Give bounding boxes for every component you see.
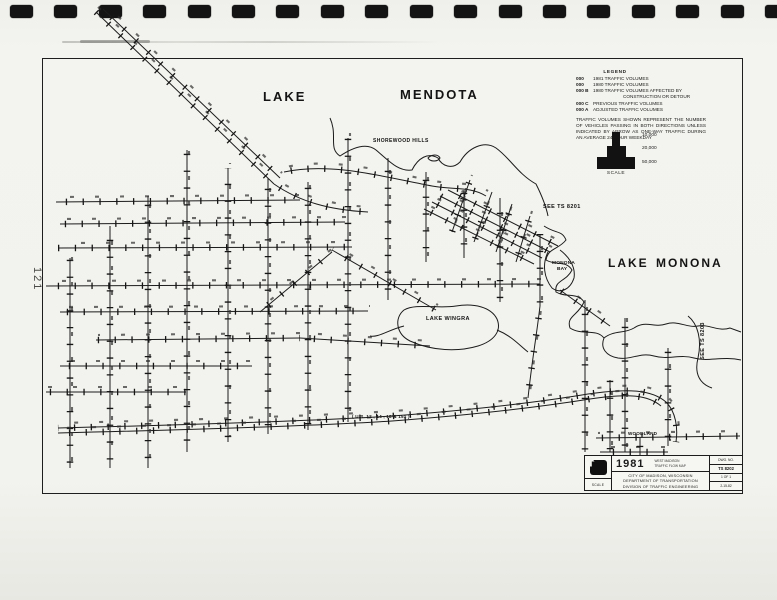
scale-value-label: 10,000 bbox=[642, 133, 657, 138]
scale-value-label: 50,000 bbox=[642, 160, 657, 165]
binder-hole bbox=[54, 5, 77, 18]
map-year: 1981 bbox=[612, 458, 648, 470]
lake-monona-label-word1: LAKE bbox=[608, 256, 649, 270]
scanned-page: { "page": { "number": "121" }, "binder":… bbox=[0, 0, 777, 600]
title-block-year-row: 1981 WEST MADISON TRAFFIC FLOW MAP bbox=[612, 456, 709, 472]
binder-hole bbox=[321, 5, 344, 18]
monona-bay-label-line2: BAY bbox=[557, 267, 567, 272]
binder-hole bbox=[365, 5, 388, 18]
binder-hole-strip bbox=[0, 0, 777, 26]
binder-hole bbox=[232, 5, 255, 18]
binder-hole bbox=[676, 5, 699, 18]
title-block-logo-column: SCALE bbox=[585, 456, 612, 490]
agency-line3: DIVISION OF TRAFFIC ENGINEERING bbox=[612, 484, 709, 489]
legend-title: LEGEND bbox=[576, 69, 654, 75]
north-arrow-cell bbox=[585, 456, 611, 479]
binder-hole bbox=[587, 5, 610, 18]
beltline-route-label: ( U.S. 12 , 14 , 18 & 151 ) bbox=[352, 414, 410, 419]
scan-smudge bbox=[80, 40, 150, 43]
scale-step-10000 bbox=[612, 132, 620, 146]
scale-step-50000 bbox=[597, 157, 635, 169]
binder-hole bbox=[454, 5, 477, 18]
lake-wingra-label: LAKE WINGRA bbox=[426, 316, 470, 322]
binder-hole bbox=[143, 5, 166, 18]
binder-hole bbox=[188, 5, 211, 18]
see-ts-8203-label: SEE TS 8203 bbox=[700, 322, 706, 360]
map-subtitle-line1: WEST MADISON bbox=[654, 459, 679, 463]
binder-hole bbox=[632, 5, 655, 18]
binder-hole bbox=[499, 5, 522, 18]
scale-caption: SCALE bbox=[596, 171, 636, 176]
scale-step-20000 bbox=[607, 146, 626, 157]
north-arrow-icon bbox=[590, 460, 607, 475]
lake-monona-label-word2: MONONA bbox=[656, 256, 723, 270]
dwg-no-label: DWG. NO. bbox=[710, 456, 742, 465]
woodland-road-label: WOODLAND bbox=[628, 431, 657, 436]
map-subtitle-line2: TRAFFIC FLOW MAP bbox=[654, 464, 685, 468]
scale-steps: 10,000 20,000 50,000 bbox=[596, 131, 636, 169]
binder-hole bbox=[10, 5, 33, 18]
page-number: 121 bbox=[3, 267, 43, 297]
binder-hole bbox=[276, 5, 299, 18]
scale-value-label: 20,000 bbox=[642, 146, 657, 151]
legend-symbol: 000 A bbox=[576, 107, 593, 113]
title-block-main-column: 1981 WEST MADISON TRAFFIC FLOW MAP CITY … bbox=[612, 456, 710, 490]
legend-text: ADJUSTED TRAFFIC VOLUMES bbox=[593, 107, 663, 113]
title-block-scale-label: SCALE bbox=[585, 479, 611, 490]
dwg-date: 2-15-82 bbox=[710, 482, 742, 490]
sheet-number: 1 OF 1 bbox=[710, 474, 742, 483]
title-block-number-column: DWG. NO. TS 8202 1 OF 1 2-15-82 bbox=[710, 456, 742, 490]
binder-hole bbox=[99, 5, 122, 18]
agency-name-block: CITY OF MADISON, WISCONSIN DEPARTMENT OF… bbox=[612, 472, 709, 490]
legend-symbol: 000 B bbox=[576, 88, 593, 94]
lake-mendota-label-word1: LAKE bbox=[263, 89, 306, 104]
binder-hole bbox=[765, 5, 777, 18]
title-block: SCALE 1981 WEST MADISON TRAFFIC FLOW MAP… bbox=[584, 455, 743, 491]
monona-bay-label-line1: MONONA bbox=[552, 261, 575, 266]
binder-hole bbox=[543, 5, 566, 18]
map-subtitle: WEST MADISON TRAFFIC FLOW MAP bbox=[654, 459, 685, 468]
lake-mendota-label-word2: MENDOTA bbox=[400, 87, 479, 102]
legend-row: 000 AADJUSTED TRAFFIC VOLUMES bbox=[576, 107, 710, 113]
binder-hole bbox=[721, 5, 744, 18]
shorewood-hills-label: SHOREWOOD HILLS bbox=[373, 138, 429, 144]
see-ts-8201-label: SEE TS 8201 bbox=[543, 204, 581, 210]
volume-scale: 10,000 20,000 50,000 SCALE bbox=[596, 131, 676, 176]
dwg-number: TS 8202 bbox=[710, 465, 742, 474]
binder-hole bbox=[410, 5, 433, 18]
